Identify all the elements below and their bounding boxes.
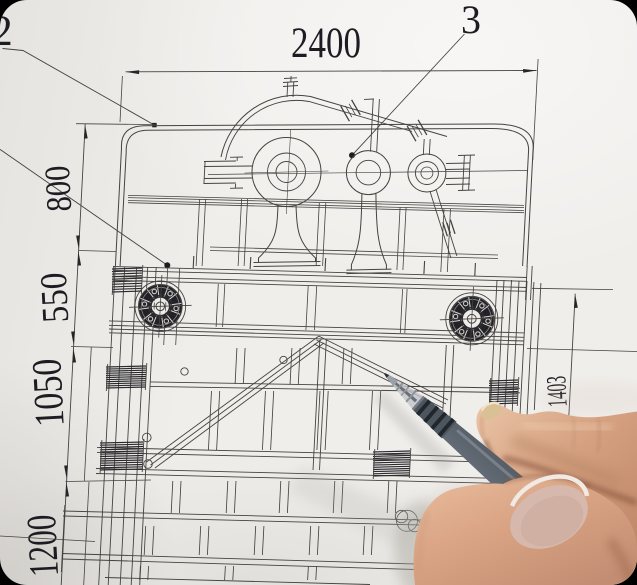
svg-text:2400: 2400 xyxy=(291,20,361,67)
svg-text:2: 2 xyxy=(0,8,13,55)
svg-text:3: 3 xyxy=(461,0,481,42)
svg-text:550: 550 xyxy=(33,272,78,324)
svg-text:1200: 1200 xyxy=(19,514,68,578)
svg-text:800: 800 xyxy=(37,165,79,213)
svg-text:1050: 1050 xyxy=(24,358,73,428)
